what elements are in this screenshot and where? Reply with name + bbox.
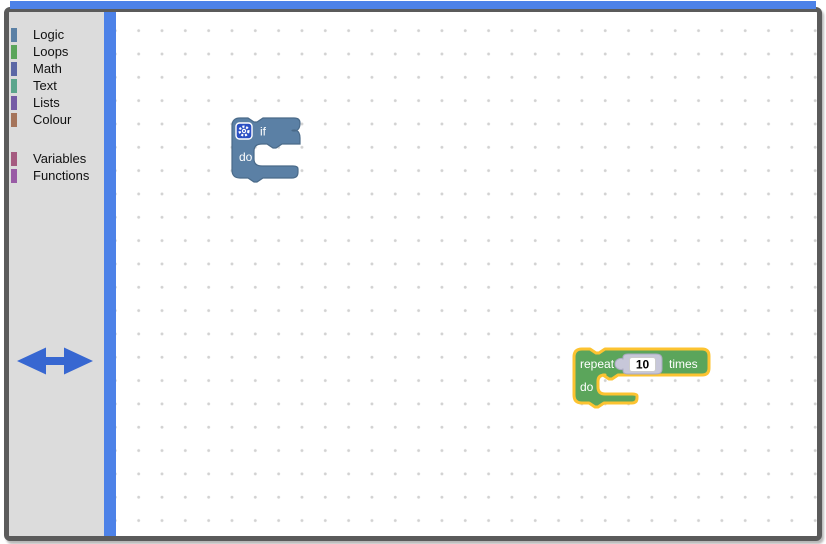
times-label: times bbox=[669, 357, 698, 371]
category-color-bar bbox=[11, 96, 17, 110]
category-color-bar bbox=[11, 62, 17, 76]
number-field-value[interactable]: 10 bbox=[636, 358, 650, 372]
toolbox-category-math[interactable]: Math bbox=[9, 60, 104, 77]
do-label: do bbox=[239, 150, 253, 164]
if-label: if bbox=[260, 125, 267, 139]
toolbox-category-text[interactable]: Text bbox=[9, 77, 104, 94]
blockly-app: Logic Loops Math Text Lists Colour bbox=[0, 0, 826, 544]
editor-frame: Logic Loops Math Text Lists Colour bbox=[4, 7, 822, 541]
toolbox-category-lists[interactable]: Lists bbox=[9, 94, 104, 111]
toolbox-category-loops[interactable]: Loops bbox=[9, 43, 104, 60]
category-color-bar bbox=[11, 113, 17, 127]
category-label: Variables bbox=[33, 151, 86, 166]
repeat-block[interactable]: 10 repeat times do bbox=[572, 347, 718, 413]
category-label: Text bbox=[33, 78, 57, 93]
category-color-bar bbox=[11, 79, 17, 93]
category-label: Functions bbox=[33, 168, 89, 183]
gear-icon-hole bbox=[243, 130, 245, 132]
category-color-bar bbox=[11, 28, 17, 42]
horizontal-resize-arrow-icon bbox=[16, 344, 94, 378]
top-accent-bar bbox=[10, 1, 816, 9]
category-color-bar bbox=[11, 152, 17, 166]
category-label: Math bbox=[33, 61, 62, 76]
toolbox-category-variables[interactable]: Variables bbox=[9, 150, 104, 167]
arrow-shape bbox=[17, 348, 93, 375]
toolbox-separator bbox=[9, 128, 104, 150]
toolbox-category-colour[interactable]: Colour bbox=[9, 111, 104, 128]
category-color-bar bbox=[11, 45, 17, 59]
toolbox-divider-strip bbox=[104, 12, 116, 536]
category-label: Colour bbox=[33, 112, 71, 127]
toolbox-category-logic[interactable]: Logic bbox=[9, 26, 104, 43]
mutator-gear-icon[interactable] bbox=[236, 123, 252, 139]
toolbox: Logic Loops Math Text Lists Colour bbox=[9, 12, 104, 536]
do-label: do bbox=[580, 380, 594, 394]
if-block[interactable]: if do bbox=[231, 117, 303, 185]
category-label: Logic bbox=[33, 27, 64, 42]
category-label: Lists bbox=[33, 95, 60, 110]
category-label: Loops bbox=[33, 44, 68, 59]
category-color-bar bbox=[11, 169, 17, 183]
toolbox-category-functions[interactable]: Functions bbox=[9, 167, 104, 184]
workspace-canvas[interactable]: if do 10 repeat times do bbox=[116, 12, 817, 536]
repeat-label: repeat bbox=[580, 357, 615, 371]
